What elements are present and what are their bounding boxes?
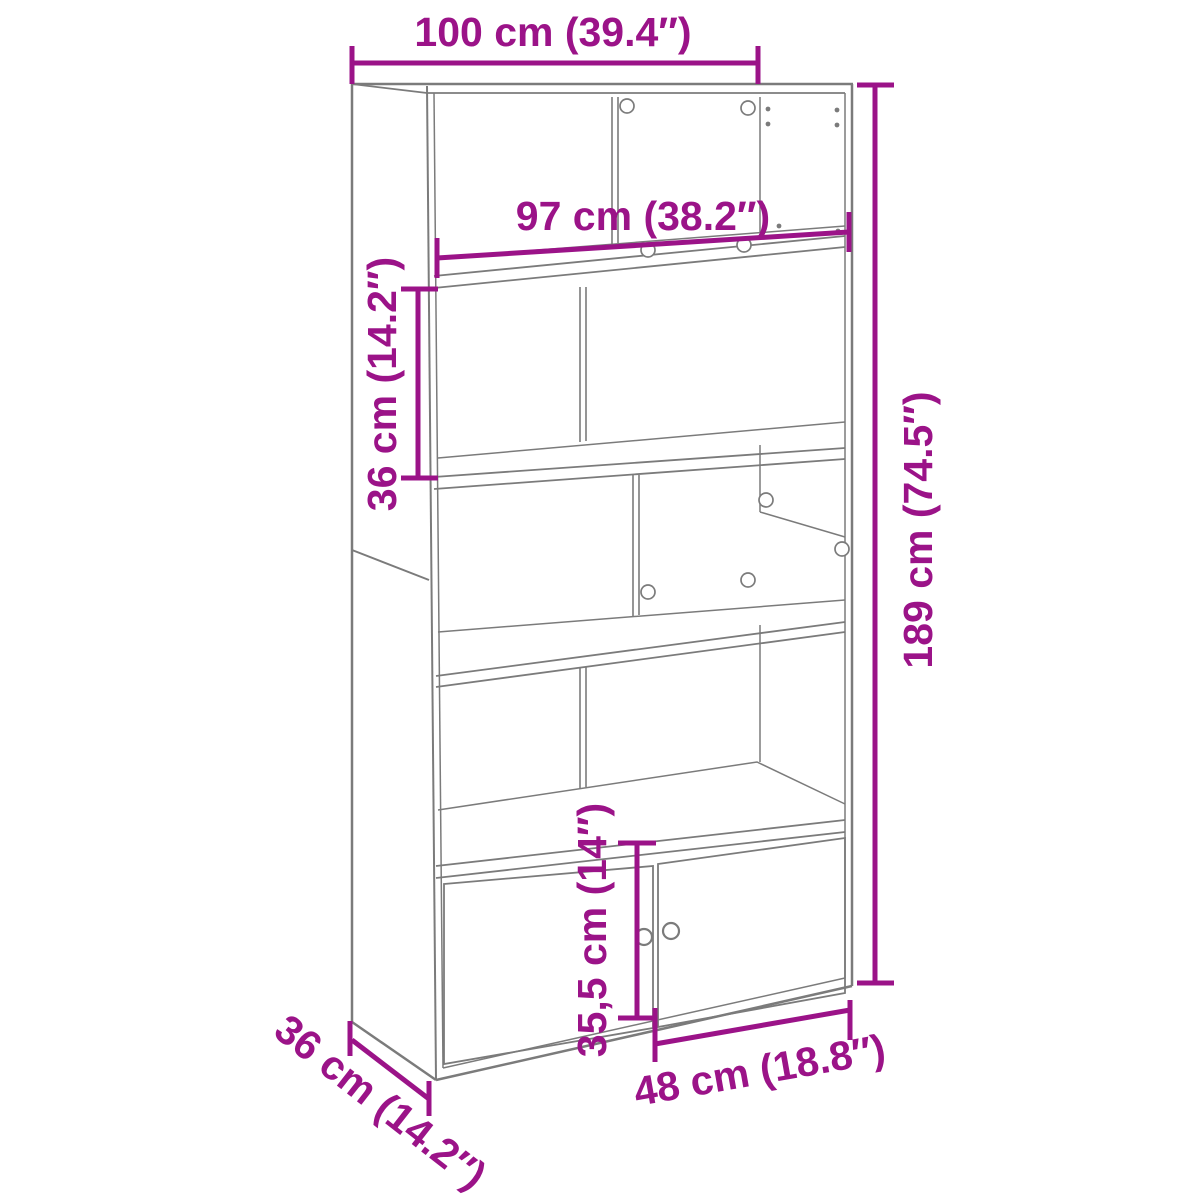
dim-compartment-height: 36 cm (14.2″) (359, 257, 438, 511)
shelf-pin-holes (766, 107, 841, 234)
dim-overall-width: 100 cm (39.4″) (352, 9, 758, 84)
dim-inner-width: 97 cm (38.2″) (437, 193, 849, 278)
dimension-label: 35,5 cm (14″) (569, 803, 615, 1057)
bookcase-dimension-diagram: 100 cm (39.4″) 97 cm (38.2″) 36 cm (14.2… (0, 0, 1200, 1200)
dim-overall-height: 189 cm (74.5″) (857, 85, 941, 983)
diagram-canvas: 100 cm (39.4″) 97 cm (38.2″) 36 cm (14.2… (0, 0, 1200, 1200)
door-left (444, 866, 653, 1064)
side-panel-joint-line (352, 550, 429, 580)
shelf-3 (436, 600, 845, 687)
shelf-4 (436, 762, 845, 878)
shelf-back-edge (438, 600, 845, 632)
pin-hole-dot (777, 224, 782, 229)
top-side-edge (352, 84, 427, 93)
dimension-label: 100 cm (39.4″) (414, 9, 691, 55)
shelf-back-edge (438, 762, 845, 810)
doors (444, 838, 845, 1064)
pin-hole-dot (766, 122, 771, 127)
shelf-front-bottom-edge (436, 632, 845, 687)
dimension-label: 48 cm (18.8″) (630, 1025, 889, 1114)
pin-hole-dot (835, 123, 840, 128)
dimension-label: 36 cm (14.2″) (266, 1006, 495, 1199)
screw-hole (759, 493, 773, 507)
door-knob-right (663, 923, 679, 939)
shelf-front-top-edge (436, 622, 845, 676)
dimension-annotations: 100 cm (39.4″) 97 cm (38.2″) 36 cm (14.2… (266, 9, 941, 1198)
dimension-label: 36 cm (14.2″) (359, 257, 405, 511)
screw-hole (741, 101, 755, 115)
shelf-front-bottom-edge (436, 832, 845, 878)
pin-hole-dot (835, 108, 840, 113)
dimension-label: 189 cm (74.5″) (895, 391, 941, 668)
side-panel-inner-joint-line (760, 512, 845, 537)
screw-hole (835, 542, 849, 556)
pin-hole-dot (766, 107, 771, 112)
screw-hole (741, 573, 755, 587)
screw-holes (620, 99, 849, 599)
interior-back-corner-lines (760, 97, 845, 762)
dim-depth: 36 cm (14.2″) (266, 1006, 495, 1199)
left-side-panel (352, 550, 436, 1080)
screw-hole (641, 585, 655, 599)
screw-hole (620, 99, 634, 113)
dimension-label: 97 cm (38.2″) (516, 193, 770, 239)
